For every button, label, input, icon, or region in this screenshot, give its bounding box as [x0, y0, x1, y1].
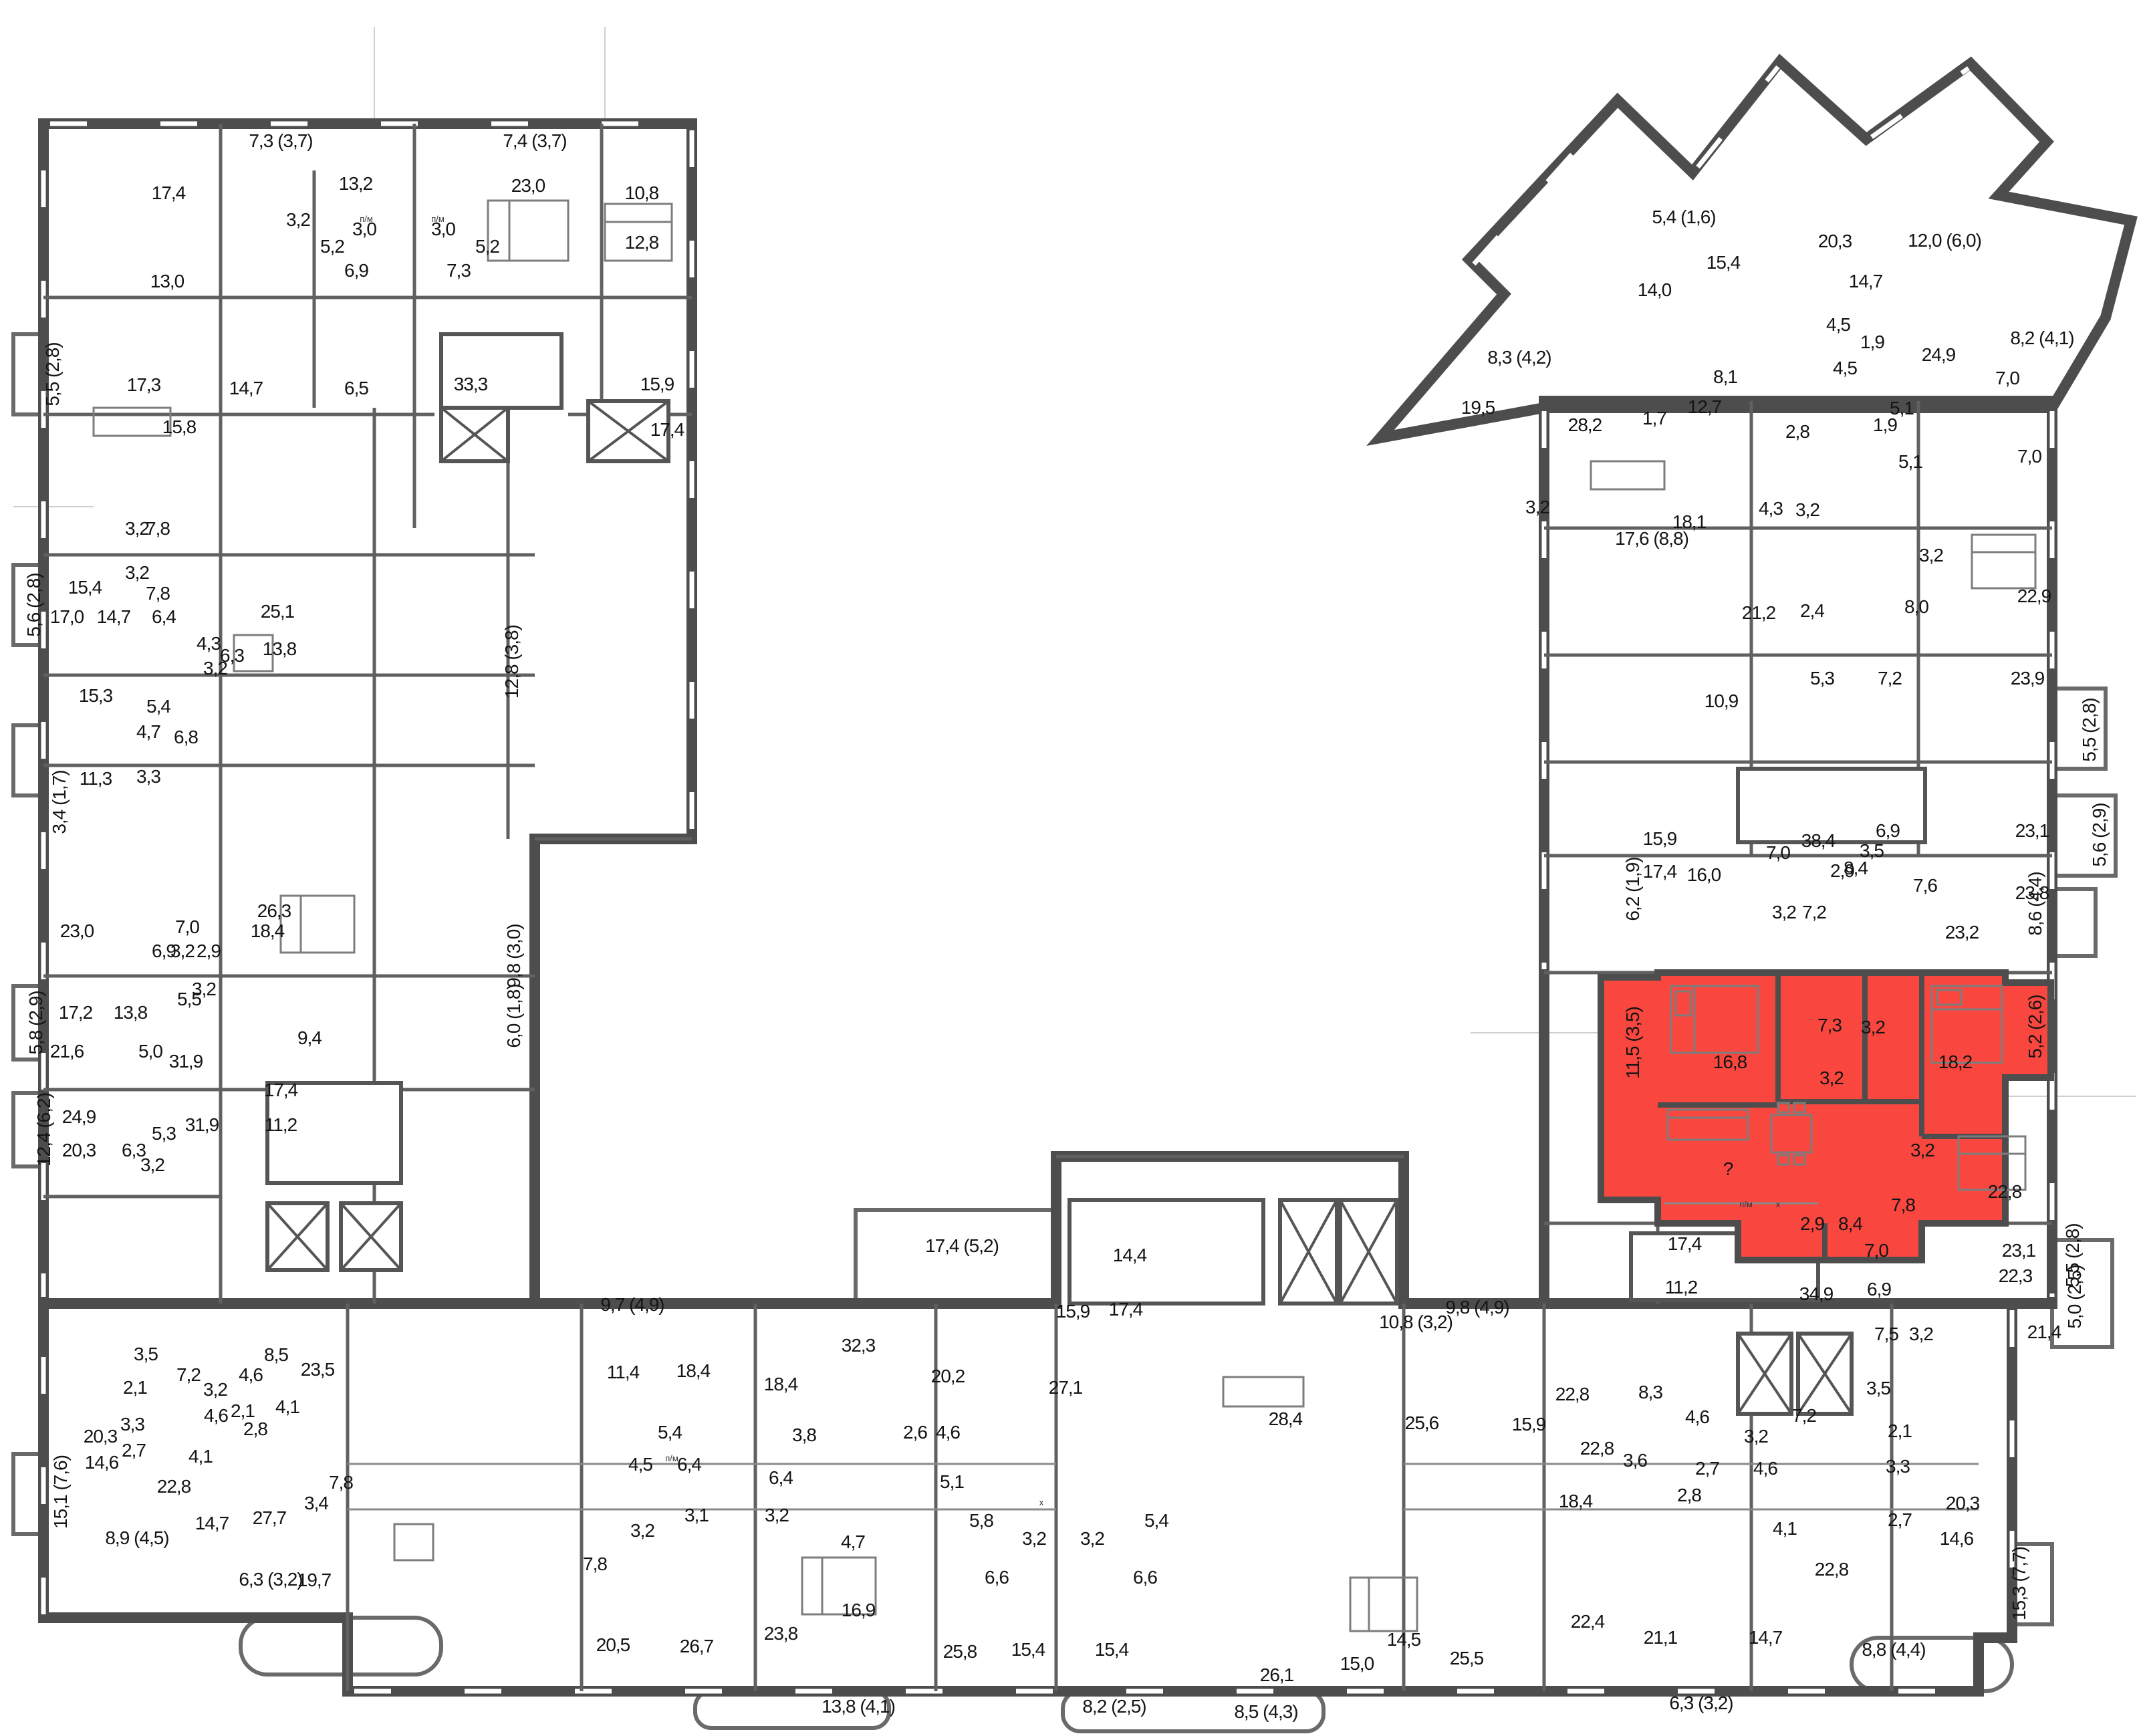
area-label: 15,4	[1095, 1639, 1129, 1660]
area-label: 6,6	[1133, 1567, 1157, 1588]
appliance-marker: п/м	[665, 1453, 678, 1463]
construction-lines	[13, 27, 2136, 1096]
elevator	[1340, 1200, 1397, 1304]
area-label: 12,8 (3,8)	[501, 625, 522, 699]
area-label: ?	[1723, 1158, 1733, 1179]
area-label: 12,7	[1688, 396, 1722, 417]
area-label: 11,2	[265, 1114, 297, 1135]
area-label: 21,4	[2027, 1322, 2061, 1342]
area-label: 13,2	[339, 173, 373, 194]
area-label: 4,7	[841, 1531, 865, 1552]
area-label: 23,1	[2002, 1240, 2036, 1261]
area-label: 23,5	[301, 1359, 335, 1380]
area-label: 3,5	[134, 1344, 158, 1364]
area-label: 19,5	[1461, 397, 1495, 418]
bed-icon	[1972, 535, 2035, 588]
area-label: 3,2	[1861, 1017, 1885, 1037]
area-label: 8,3	[1638, 1382, 1662, 1402]
area-label: 5,4	[146, 696, 170, 717]
area-label: 15,3 (7,7)	[2009, 1547, 2029, 1620]
area-label: 6,4	[677, 1454, 701, 1475]
area-label: 2,7	[122, 1440, 146, 1461]
area-label: 15,3	[79, 685, 113, 706]
area-label: 3,8	[792, 1424, 816, 1445]
area-label: 6,3 (3,2)	[239, 1569, 302, 1590]
sofa-icon	[1223, 1377, 1303, 1406]
area-label: 26,7	[680, 1636, 714, 1656]
area-label: 16,0	[1687, 864, 1721, 885]
area-label: 8,0	[1904, 596, 1928, 617]
area-label: 20,5	[596, 1634, 630, 1655]
area-label: 8,5	[264, 1344, 288, 1365]
area-label: 4,3	[197, 633, 221, 654]
area-label: 3,5	[1866, 1378, 1890, 1398]
area-label: 5,3	[152, 1123, 176, 1144]
area-label: 15,8	[162, 416, 197, 437]
area-label: 17,4 (5,2)	[925, 1235, 999, 1256]
area-label: 16,9	[842, 1600, 876, 1620]
area-label: 23,0	[511, 175, 545, 196]
area-label: 7,8	[146, 518, 170, 539]
area-label: 7,2	[176, 1364, 201, 1385]
area-label: 4,1	[275, 1396, 299, 1417]
area-label: 3,2	[203, 658, 227, 678]
area-label: 3,3	[1886, 1456, 1910, 1477]
area-label: 3,2	[1819, 1068, 1844, 1088]
area-label: 10,8	[625, 182, 659, 203]
area-label: 15,1 (7,6)	[50, 1455, 71, 1529]
area-label: 4,6	[239, 1364, 263, 1385]
building-outline	[43, 61, 2131, 1691]
area-label: 22,8	[1988, 1181, 2022, 1202]
elevator	[267, 1203, 328, 1270]
area-label: 6,0 (1,8)	[503, 984, 524, 1047]
area-label: 6,9	[1876, 820, 1900, 841]
area-label: 5,5 (2,8)	[42, 342, 63, 406]
area-label: 6,4	[152, 606, 176, 627]
floor-plan-canvas: 7,3 (3,7)7,4 (3,7)17,413,223,010,83,23,0…	[0, 0, 2139, 1736]
area-label: 5,1	[1898, 451, 1922, 472]
area-label: 13,8	[114, 1002, 148, 1023]
area-label: 6,6	[985, 1567, 1009, 1588]
area-label: 3,2	[140, 1154, 164, 1175]
area-label: 23,9	[2011, 668, 2045, 689]
area-label: 14,7	[97, 606, 131, 627]
appliance-marker: х	[1776, 1199, 1781, 1209]
area-label: 2,8	[243, 1418, 267, 1439]
area-label: 15,0	[1340, 1653, 1374, 1674]
area-label: 2,8	[1677, 1485, 1701, 1505]
area-label: 10,9	[1705, 691, 1739, 711]
area-label: 5,6 (2,8)	[23, 573, 44, 636]
area-label: 4,5	[1826, 314, 1850, 335]
area-label: 3,2	[1080, 1528, 1104, 1549]
area-label: 17,0	[50, 606, 84, 627]
bed-icon	[281, 896, 354, 953]
area-label: 3,2	[1919, 545, 1943, 566]
area-label: 27,1	[1049, 1377, 1083, 1398]
area-label: 15,4	[68, 577, 102, 598]
area-label: 3,6	[1623, 1450, 1647, 1471]
area-label: 17,6 (8,8)	[1615, 528, 1688, 549]
area-label: 17,2	[59, 1002, 93, 1023]
area-label: 24,9	[62, 1106, 96, 1127]
area-label: 7,2	[1878, 668, 1902, 689]
area-label: 2,1	[1888, 1420, 1912, 1441]
area-label: 17,4	[152, 182, 186, 203]
area-label: 7,8	[583, 1554, 607, 1574]
area-label: 14,7	[1749, 1627, 1783, 1648]
area-label: 22,4	[1571, 1611, 1605, 1632]
area-label: 7,8	[1891, 1195, 1915, 1215]
area-label: 7,3	[447, 260, 471, 281]
area-label: 4,5	[1833, 358, 1857, 378]
area-label: 6,9	[1867, 1279, 1891, 1299]
area-label: 2,4	[1800, 600, 1824, 621]
area-label: 14,7	[195, 1513, 229, 1533]
area-label: 7,0	[175, 916, 199, 937]
area-label: 7,2	[1792, 1405, 1816, 1426]
area-label: 5,3	[1810, 668, 1834, 689]
area-label: 8,4	[1838, 1213, 1862, 1234]
area-label: 22,8	[1555, 1384, 1590, 1404]
area-label: 7,4 (3,7)	[503, 130, 566, 151]
area-label: 5,4 (1,6)	[1652, 207, 1715, 227]
area-label: 4,6	[1685, 1406, 1709, 1427]
area-label: 15,9	[1056, 1301, 1090, 1322]
area-label: 11,5 (3,5)	[1622, 1007, 1643, 1079]
area-label: 4,5	[628, 1454, 652, 1475]
area-label: 5,1	[1890, 398, 1914, 418]
appliance-marker: х	[1039, 1497, 1044, 1507]
area-label: 4,6	[1753, 1458, 1777, 1479]
area-label: 4,1	[188, 1446, 213, 1467]
area-label: 3,2	[765, 1505, 789, 1525]
area-label: 7,6	[1913, 875, 1937, 896]
area-label: 25,1	[261, 601, 295, 622]
area-label: 8,5 (4,3)	[1234, 1701, 1297, 1722]
area-label: 5,4	[1144, 1510, 1168, 1531]
area-label: 17,4	[264, 1080, 298, 1100]
area-label: 7,0	[1766, 842, 1790, 863]
area-label: 9,7 (4,9)	[600, 1294, 664, 1315]
area-label: 23,1	[2015, 820, 2049, 841]
area-label: 4,6	[204, 1405, 228, 1426]
area-label: 3,2	[1525, 497, 1549, 517]
area-label: 4,7	[136, 721, 160, 742]
area-label: 25,8	[943, 1641, 977, 1662]
area-label: 23,2	[1945, 922, 1979, 943]
area-label: 10,8 (3,2)	[1379, 1312, 1453, 1332]
area-label: 25,5	[1450, 1648, 1484, 1668]
sofa-icon	[94, 408, 170, 436]
area-label: 5,2	[320, 236, 344, 257]
area-label: 5,1	[940, 1471, 964, 1492]
area-label: 14,7	[1849, 271, 1883, 291]
area-label: 9,4	[297, 1027, 322, 1048]
area-label: 1,9	[1860, 332, 1884, 352]
area-label: 15,9	[1643, 828, 1677, 849]
area-label: 3,3	[136, 766, 160, 787]
area-label: 34,9	[1799, 1283, 1834, 1304]
area-labels: 7,3 (3,7)7,4 (3,7)17,413,223,010,83,23,0…	[23, 130, 2110, 1722]
area-label: 23,8	[764, 1623, 798, 1644]
area-label: 14,7	[229, 378, 263, 398]
area-label: 6,3 (3,2)	[1669, 1693, 1733, 1713]
area-label: 21,6	[50, 1041, 84, 1062]
area-label: 3,2	[1772, 902, 1796, 922]
area-label: 13,0	[150, 271, 184, 291]
area-label: 12,4 (6,2)	[33, 1093, 54, 1166]
area-label: 20,3	[1818, 231, 1852, 251]
area-label: 22,3	[1999, 1265, 2033, 1286]
area-label: 17,4	[1643, 861, 1677, 882]
area-label: 20,3	[62, 1140, 96, 1160]
area-label: 6,2 (1,9)	[1622, 857, 1643, 920]
area-label: 2,1	[123, 1377, 147, 1398]
area-label: 12,8	[625, 232, 659, 253]
area-label: 18,2	[1938, 1051, 1973, 1072]
area-label: 8,9 (4,5)	[105, 1527, 168, 1548]
area-label: 7,8	[146, 583, 170, 604]
area-label: 28,2	[1568, 414, 1602, 435]
area-label: 9,8 (4,9)	[1445, 1297, 1509, 1318]
area-label: 14,4	[1113, 1245, 1147, 1265]
area-label: 2,9	[1800, 1213, 1824, 1234]
elevator	[1280, 1200, 1337, 1304]
area-label: 3,2	[192, 979, 216, 999]
area-label: 5,8 (2,9)	[25, 991, 46, 1054]
area-label: 6,4	[769, 1467, 793, 1488]
area-label: 14,0	[1638, 279, 1672, 300]
area-label: 8,6 (4,4)	[2025, 872, 2045, 935]
bed-icon	[1350, 1578, 1417, 1631]
area-label: 11,2	[1665, 1277, 1698, 1297]
area-label: 11,4	[607, 1362, 640, 1382]
area-label: 6,5	[344, 378, 368, 398]
area-label: 31,9	[185, 1114, 219, 1135]
dining-table-icon	[394, 1524, 433, 1560]
area-label: 2,7	[1695, 1458, 1719, 1479]
area-label: 3,4	[304, 1493, 328, 1513]
area-label: 24,9	[1922, 344, 1956, 365]
area-label: 3,2	[630, 1520, 654, 1541]
area-label: 11,3	[80, 768, 112, 789]
area-label: 3,2	[286, 209, 310, 230]
floor-plan-page: 7,3 (3,7)7,4 (3,7)17,413,223,010,83,23,0…	[0, 0, 2139, 1736]
area-label: 20,2	[931, 1366, 965, 1386]
bed-icon	[488, 201, 568, 261]
area-label: 13,8 (4,1)	[822, 1696, 895, 1717]
area-label: 5,2	[475, 236, 499, 257]
area-label: 7,3	[1817, 1015, 1842, 1035]
area-label: 7,2	[1802, 902, 1826, 922]
area-label: 6,8	[174, 727, 198, 747]
area-label: 6,9	[344, 260, 368, 281]
area-label: 13,8	[263, 638, 297, 659]
area-label: 22,8	[1815, 1559, 1849, 1580]
area-label: 14,6	[85, 1452, 119, 1473]
area-label: 4,3	[1759, 498, 1783, 519]
area-label: 19,7	[297, 1570, 332, 1590]
area-label: 32,3	[842, 1335, 876, 1356]
area-label: 2,7	[1888, 1509, 1912, 1530]
area-label: 5,5 (2,8)	[2079, 698, 2100, 761]
area-label: 5,6 (2,9)	[2089, 803, 2110, 866]
area-label: 15,9	[1512, 1414, 1546, 1435]
area-label: 14,5	[1387, 1629, 1421, 1650]
area-label: 15,9	[640, 374, 674, 394]
area-label: 7,5	[1874, 1324, 1898, 1344]
area-label: 3,1	[684, 1505, 709, 1525]
area-label: 4,6	[936, 1422, 960, 1443]
area-label: 17,4	[650, 419, 684, 440]
area-label: 12,0 (6,0)	[1908, 230, 1981, 251]
area-label: 3,2	[1909, 1324, 1933, 1344]
area-label: 8,2 (4,1)	[2010, 328, 2073, 348]
area-label: 1,7	[1642, 408, 1666, 428]
area-label: 5,8	[969, 1510, 993, 1531]
area-label: 5,2 (2,6)	[2025, 995, 2045, 1058]
area-label: 2,8	[1785, 421, 1809, 442]
area-label: 28,4	[1269, 1408, 1303, 1429]
area-label: 9,8 (3,0)	[503, 924, 524, 987]
area-label: 2,9	[197, 941, 221, 961]
area-label: 25,6	[1405, 1412, 1439, 1433]
area-label: 5,0	[138, 1041, 162, 1062]
area-label: 26,3	[257, 900, 291, 921]
area-label: 8,4	[1844, 858, 1868, 878]
area-label: 21,1	[1644, 1627, 1678, 1648]
area-label: 7,3 (3,7)	[249, 130, 312, 151]
appliance-marker: п/м	[431, 214, 445, 224]
sofa-icon	[1591, 461, 1664, 489]
elevator	[441, 408, 508, 461]
area-label: 38,4	[1801, 830, 1836, 851]
area-label: 18,4	[676, 1360, 711, 1381]
area-label: 3,2	[170, 941, 195, 961]
area-label: 3,2	[1022, 1528, 1046, 1549]
area-label: 27,7	[253, 1507, 287, 1528]
area-label: 3,2	[1744, 1426, 1768, 1447]
appliance-marker: п/м	[1739, 1199, 1753, 1209]
area-label: 26,1	[1260, 1664, 1294, 1685]
area-label: 21,2	[1742, 602, 1776, 623]
area-label: 8,8 (4,4)	[1862, 1639, 1925, 1660]
area-label: 20,3	[1946, 1493, 1980, 1513]
area-label: 15,4	[1011, 1639, 1045, 1660]
area-label: 7,0	[1864, 1240, 1888, 1261]
area-label: 31,9	[169, 1051, 203, 1072]
area-label: 23,0	[60, 920, 94, 941]
area-label: 16,8	[1713, 1051, 1747, 1072]
area-label: 5,0 (2,5)	[2064, 1265, 2085, 1328]
elevator	[1738, 1334, 1791, 1414]
area-label: 7,0	[2017, 446, 2041, 467]
appliance-marker: п/м	[360, 214, 373, 224]
area-label: 3,4 (1,7)	[49, 770, 70, 834]
area-label: 20,3	[84, 1426, 118, 1447]
area-label: 3,2	[1795, 499, 1819, 520]
area-label: 5,4	[658, 1422, 682, 1443]
area-label: 8,2 (2,5)	[1082, 1696, 1146, 1717]
area-label: 17,4	[1109, 1299, 1143, 1320]
area-label: 22,8	[157, 1476, 191, 1497]
area-label: 7,8	[329, 1472, 353, 1493]
area-label: 18,4	[251, 920, 285, 941]
area-label: 22,8	[1580, 1438, 1614, 1459]
area-label: 3,2	[1910, 1140, 1934, 1160]
area-label: 2,6	[903, 1422, 927, 1443]
area-label: 3,2	[203, 1379, 227, 1400]
area-label: 7,0	[1995, 368, 2019, 388]
elevator	[341, 1203, 401, 1270]
area-label: 33,3	[454, 374, 488, 394]
area-label: 18,4	[764, 1374, 798, 1394]
area-label: 17,3	[127, 374, 161, 395]
area-label: 15,4	[1707, 252, 1741, 273]
area-label: 18,4	[1559, 1491, 1593, 1511]
area-label: 8,1	[1713, 366, 1737, 387]
area-label: 17,4	[1668, 1233, 1702, 1254]
area-label: 14,6	[1940, 1528, 1974, 1549]
area-label: 8,3 (4,2)	[1487, 347, 1551, 368]
area-label: 3,2	[125, 562, 149, 583]
area-label: 3,3	[120, 1414, 144, 1435]
area-label: 4,1	[1773, 1518, 1797, 1539]
area-label: 22,9	[2017, 586, 2051, 606]
elevator	[1798, 1334, 1852, 1414]
